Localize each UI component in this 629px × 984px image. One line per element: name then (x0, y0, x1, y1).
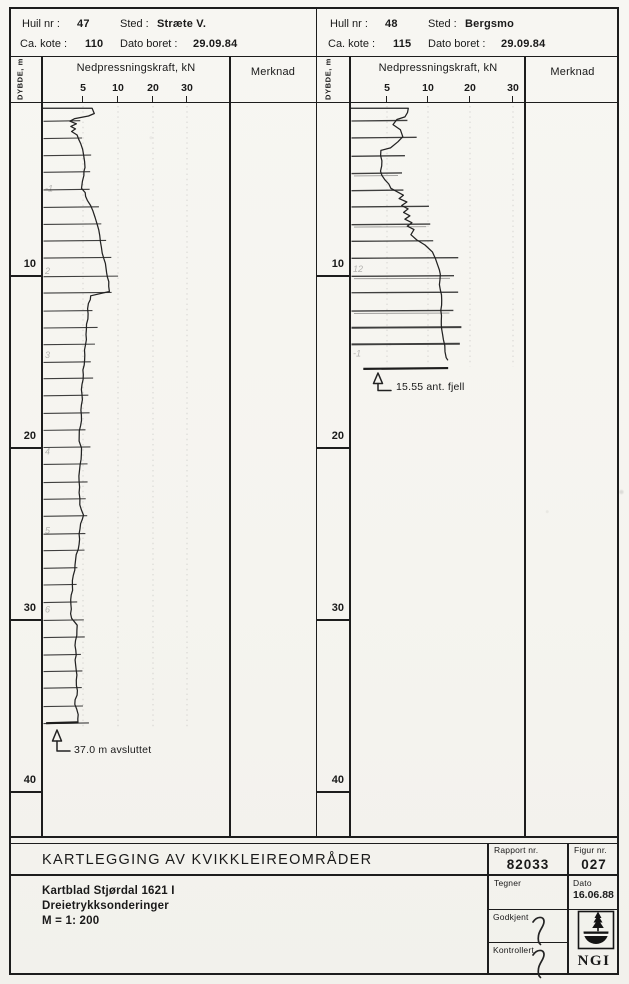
metre-line (44, 568, 78, 569)
metre-line (352, 310, 454, 311)
pencil-mark: -1 (353, 348, 361, 358)
metre-line (44, 224, 102, 225)
metre-line (44, 413, 90, 414)
metre-line (44, 327, 98, 328)
signature-godkjent (533, 917, 544, 944)
metre-line (44, 688, 82, 689)
metre-line (44, 447, 91, 448)
metre-line (44, 516, 88, 517)
metre-line (44, 311, 93, 312)
pencil-mark: 4 (45, 446, 50, 456)
metre-line (44, 378, 94, 379)
metre-line (44, 584, 77, 585)
metre-line (44, 172, 91, 173)
pencil-mark: 6 (45, 605, 50, 615)
metre-line (352, 173, 403, 174)
metre-line (352, 344, 460, 345)
metre-line (352, 327, 462, 328)
pencil-mark: 3 (45, 350, 50, 360)
metre-line (44, 138, 83, 139)
metre-line (44, 637, 85, 638)
metre-line (352, 258, 459, 259)
metre-line (352, 206, 429, 207)
metre-line (44, 257, 112, 258)
metre-line (352, 224, 431, 225)
metre-line (44, 362, 91, 363)
metre-line (352, 137, 417, 138)
metre-line (352, 276, 454, 277)
sounding-curve (351, 108, 448, 360)
logo-bowl-shape (584, 932, 609, 944)
end-of-sounding-line (46, 722, 78, 723)
end-arrow-icon (374, 373, 392, 391)
metre-line (44, 464, 88, 465)
metre-line (352, 292, 459, 293)
sounding-curve (43, 108, 109, 723)
pencil-mark: -1 (45, 183, 53, 193)
signature-kontrollert (533, 950, 544, 977)
metre-line (44, 706, 83, 707)
metre-line (352, 241, 434, 242)
scanned-sounding-figure: Huil nr : 47 Sted : Stræte V. Ca. kote :… (0, 0, 629, 984)
metre-line (352, 120, 408, 121)
end-of-sounding-line (363, 368, 448, 369)
metre-line (44, 344, 95, 345)
metre-line (44, 602, 78, 603)
metre-line (44, 620, 84, 621)
metre-line (44, 482, 88, 483)
metre-line (44, 240, 107, 241)
pencil-mark: 2 (44, 266, 50, 276)
metre-line (44, 654, 81, 655)
metre-line (44, 121, 81, 122)
end-arrow-icon (53, 730, 71, 751)
pencil-mark: 12 (353, 264, 363, 274)
ngi-logo (579, 912, 614, 949)
sounding-curves-layer: -12345612-1 (0, 0, 629, 984)
metre-line (352, 156, 405, 157)
logo-tree-icon (592, 912, 604, 932)
